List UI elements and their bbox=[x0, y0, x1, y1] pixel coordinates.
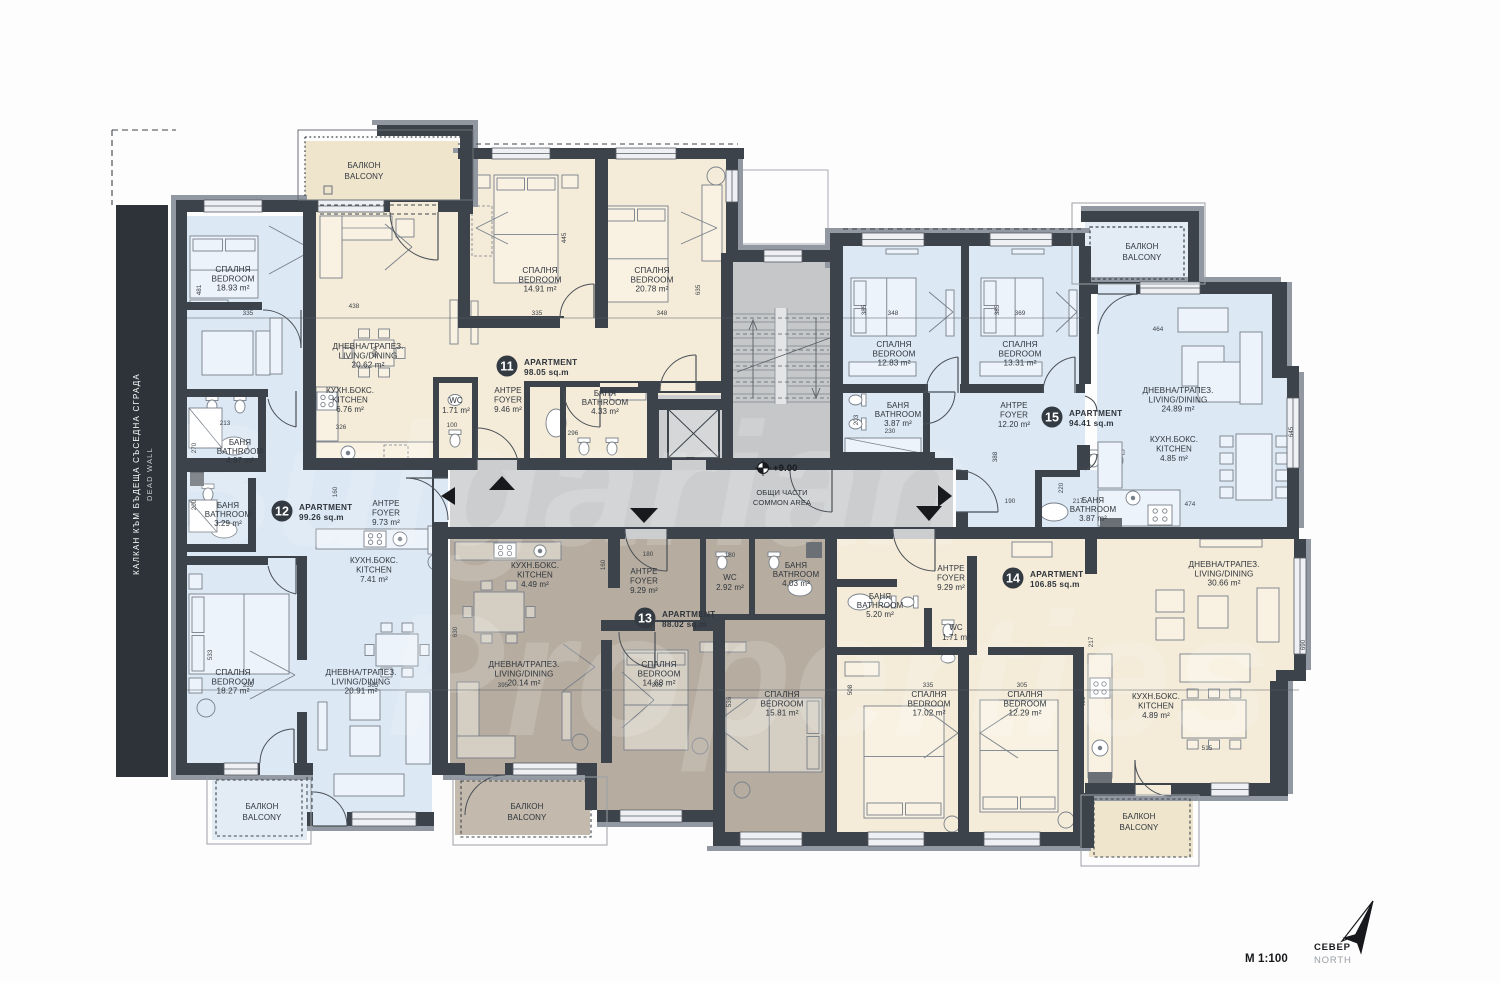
svg-text:BEDROOM: BEDROOM bbox=[907, 699, 950, 708]
svg-text:645: 645 bbox=[1288, 426, 1295, 437]
svg-text:388: 388 bbox=[992, 451, 999, 462]
svg-text:WC: WC bbox=[723, 573, 737, 582]
svg-text:474: 474 bbox=[1185, 501, 1196, 508]
svg-text:BATHROOM: BATHROOM bbox=[582, 398, 629, 407]
svg-text:9.29 m²: 9.29 m² bbox=[937, 583, 965, 592]
svg-text:СПАЛНЯ: СПАЛНЯ bbox=[911, 690, 946, 699]
svg-text:783: 783 bbox=[443, 674, 450, 685]
svg-text:5.20 m²: 5.20 m² bbox=[866, 610, 894, 619]
svg-text:213: 213 bbox=[220, 420, 231, 427]
svg-text:BEDROOM: BEDROOM bbox=[518, 275, 561, 284]
svg-text:98.05 sq.m: 98.05 sq.m bbox=[524, 368, 569, 377]
svg-text:БАНЯ: БАНЯ bbox=[594, 389, 616, 398]
svg-text:3.87 m²: 3.87 m² bbox=[884, 419, 912, 428]
svg-text:20.14 m²: 20.14 m² bbox=[507, 679, 540, 688]
svg-text:13: 13 bbox=[638, 612, 652, 626]
svg-text:СПАЛНЯ: СПАЛНЯ bbox=[764, 690, 799, 699]
svg-text:508: 508 bbox=[847, 684, 854, 695]
svg-text:217: 217 bbox=[1088, 636, 1095, 647]
svg-text:2.92 m²: 2.92 m² bbox=[716, 583, 744, 592]
svg-text:ДНЕВНА/ТРАПЕЗ.: ДНЕВНА/ТРАПЕЗ. bbox=[1142, 386, 1213, 395]
svg-text:АНТРЕ: АНТРЕ bbox=[630, 567, 657, 576]
svg-text:СПАЛНЯ: СПАЛНЯ bbox=[1002, 340, 1037, 349]
svg-text:100: 100 bbox=[447, 422, 458, 429]
svg-text:7.41 m²: 7.41 m² bbox=[360, 575, 388, 584]
svg-text:BALCONY: BALCONY bbox=[1123, 253, 1162, 262]
svg-text:14: 14 bbox=[1006, 572, 1020, 586]
svg-text:3.87 m²: 3.87 m² bbox=[1079, 514, 1107, 523]
svg-text:9.29 m²: 9.29 m² bbox=[630, 586, 658, 595]
svg-text:106.85 sq.m: 106.85 sq.m bbox=[1030, 580, 1080, 589]
svg-text:12.83 m²: 12.83 m² bbox=[877, 359, 910, 368]
svg-text:335: 335 bbox=[532, 310, 543, 317]
svg-text:403: 403 bbox=[1080, 696, 1087, 707]
svg-text:ДНЕВНА/ТРАПЕЗ.: ДНЕВНА/ТРАПЕЗ. bbox=[332, 342, 403, 351]
svg-text:12: 12 bbox=[275, 505, 289, 519]
svg-text:270: 270 bbox=[191, 442, 198, 453]
svg-text:160: 160 bbox=[205, 546, 216, 553]
svg-text:БАНЯ: БАНЯ bbox=[785, 561, 807, 570]
svg-text:3.29 m²: 3.29 m² bbox=[214, 519, 242, 528]
svg-text:BEDROOM: BEDROOM bbox=[760, 699, 803, 708]
svg-text:1.71 m²: 1.71 m² bbox=[442, 406, 470, 415]
svg-text:9.46 m²: 9.46 m² bbox=[494, 405, 522, 414]
svg-text:КУХН.БОКС.: КУХН.БОКС. bbox=[350, 556, 398, 565]
svg-text:4.03 m²: 4.03 m² bbox=[782, 579, 810, 588]
svg-text:13.31 m²: 13.31 m² bbox=[1003, 359, 1036, 368]
svg-text:КУХН.БОКС.: КУХН.БОКС. bbox=[1132, 692, 1180, 701]
svg-text:BATHROOM: BATHROOM bbox=[217, 447, 264, 456]
svg-text:6.76 m²: 6.76 m² bbox=[336, 405, 364, 414]
svg-text:630: 630 bbox=[452, 626, 459, 637]
svg-text:BALCONY: BALCONY bbox=[1120, 823, 1159, 832]
svg-text:20.62 m²: 20.62 m² bbox=[351, 361, 384, 370]
svg-text:690: 690 bbox=[1300, 639, 1307, 650]
svg-text:ОБЩИ ЧАСТИ: ОБЩИ ЧАСТИ bbox=[756, 488, 807, 497]
svg-text:APARTMENT: APARTMENT bbox=[1030, 570, 1084, 579]
svg-text:ДНЕВНА/ТРАПЕЗ.: ДНЕВНА/ТРАПЕЗ. bbox=[488, 660, 559, 669]
svg-text:APARTMENT: APARTMENT bbox=[524, 358, 578, 367]
svg-text:KITCHEN: KITCHEN bbox=[517, 571, 553, 580]
svg-text:NORTH: NORTH bbox=[1314, 955, 1352, 966]
svg-text:FOYER: FOYER bbox=[937, 574, 965, 583]
svg-text:4.97 m²: 4.97 m² bbox=[226, 456, 254, 465]
svg-text:BEDROOM: BEDROOM bbox=[998, 349, 1041, 358]
svg-text:АНТРЕ: АНТРЕ bbox=[1000, 401, 1027, 410]
svg-text:4.85 m²: 4.85 m² bbox=[1160, 454, 1188, 463]
svg-text:СПАЛНЯ: СПАЛНЯ bbox=[215, 265, 250, 274]
svg-text:+9.00: +9.00 bbox=[773, 463, 798, 474]
svg-text:БАЛКОН: БАЛКОН bbox=[245, 802, 278, 811]
svg-text:BALCONY: BALCONY bbox=[345, 172, 384, 181]
svg-text:LIVING/DINING: LIVING/DINING bbox=[331, 677, 390, 686]
svg-text:335: 335 bbox=[923, 682, 934, 689]
svg-text:20.78 m²: 20.78 m² bbox=[635, 285, 668, 294]
svg-text:515: 515 bbox=[1202, 745, 1213, 752]
svg-text:438: 438 bbox=[349, 303, 360, 310]
svg-text:369: 369 bbox=[1015, 310, 1026, 317]
svg-text:445: 445 bbox=[561, 232, 568, 243]
svg-text:635: 635 bbox=[695, 284, 702, 295]
svg-text:БАНЯ: БАНЯ bbox=[229, 438, 251, 447]
svg-text:FOYER: FOYER bbox=[1000, 411, 1028, 420]
svg-text:АНТРЕ: АНТРЕ bbox=[494, 386, 521, 395]
svg-text:DEAD WALL: DEAD WALL bbox=[145, 447, 154, 501]
svg-text:385: 385 bbox=[861, 304, 868, 315]
svg-text:220: 220 bbox=[1058, 482, 1065, 493]
svg-text:88.02 sq.m: 88.02 sq.m bbox=[662, 620, 707, 629]
svg-text:14.91 m²: 14.91 m² bbox=[523, 285, 556, 294]
svg-text:СПАЛНЯ: СПАЛНЯ bbox=[634, 266, 669, 275]
svg-text:ДНЕВНА/ТРАПЕЗ.: ДНЕВНА/ТРАПЕЗ. bbox=[325, 668, 396, 677]
svg-text:305: 305 bbox=[1017, 682, 1028, 689]
svg-text:СПАЛНЯ: СПАЛНЯ bbox=[522, 266, 557, 275]
svg-text:APARTMENT: APARTMENT bbox=[299, 503, 353, 512]
svg-text:15.81 m²: 15.81 m² bbox=[765, 709, 798, 718]
svg-text:335: 335 bbox=[243, 310, 254, 317]
svg-text:BEDROOM: BEDROOM bbox=[211, 677, 254, 686]
svg-text:4.49 m²: 4.49 m² bbox=[521, 580, 549, 589]
svg-text:BEDROOM: BEDROOM bbox=[211, 274, 254, 283]
svg-text:533: 533 bbox=[207, 649, 214, 660]
svg-text:481: 481 bbox=[196, 284, 203, 295]
svg-text:230: 230 bbox=[885, 428, 896, 435]
svg-text:20.91 m²: 20.91 m² bbox=[344, 687, 377, 696]
svg-text:12.29 m²: 12.29 m² bbox=[1008, 709, 1041, 718]
svg-text:BATHROOM: BATHROOM bbox=[857, 601, 904, 610]
svg-text:17.02 m²: 17.02 m² bbox=[912, 709, 945, 718]
svg-text:14.68 m²: 14.68 m² bbox=[642, 679, 675, 688]
svg-text:KITCHEN: KITCHEN bbox=[356, 566, 392, 575]
svg-text:BATHROOM: BATHROOM bbox=[1070, 505, 1117, 514]
svg-text:LIVING/DINING: LIVING/DINING bbox=[494, 669, 553, 678]
svg-text:4.89 m²: 4.89 m² bbox=[1142, 711, 1170, 720]
svg-text:СПАЛНЯ: СПАЛНЯ bbox=[215, 668, 250, 677]
svg-text:БАНЯ: БАНЯ bbox=[869, 592, 891, 601]
svg-text:BEDROOM: BEDROOM bbox=[630, 275, 673, 284]
svg-text:КУХН.БОКС.: КУХН.БОКС. bbox=[511, 561, 559, 570]
svg-text:1.71 m²: 1.71 m² bbox=[942, 633, 970, 642]
svg-text:464: 464 bbox=[1153, 326, 1164, 333]
svg-text:BATHROOM: BATHROOM bbox=[773, 570, 820, 579]
svg-text:180: 180 bbox=[643, 551, 654, 558]
svg-text:ДНЕВНА/ТРАПЕЗ.: ДНЕВНА/ТРАПЕЗ. bbox=[1188, 560, 1259, 569]
svg-text:9.73 m²: 9.73 m² bbox=[372, 518, 400, 527]
svg-text:11: 11 bbox=[500, 360, 513, 374]
svg-text:БАНЯ: БАНЯ bbox=[1082, 496, 1104, 505]
svg-text:COMMON AREA: COMMON AREA bbox=[753, 498, 811, 507]
svg-text:LIVING/DINING: LIVING/DINING bbox=[338, 351, 397, 360]
svg-text:WC: WC bbox=[949, 623, 963, 632]
svg-text:BATHROOM: BATHROOM bbox=[205, 510, 252, 519]
svg-text:385: 385 bbox=[994, 304, 1001, 315]
svg-text:BATHROOM: BATHROOM bbox=[875, 410, 922, 419]
svg-text:WC: WC bbox=[449, 396, 463, 405]
svg-text:160: 160 bbox=[332, 486, 339, 497]
svg-text:203: 203 bbox=[853, 414, 860, 425]
svg-text:160: 160 bbox=[600, 559, 607, 570]
svg-text:15: 15 bbox=[1045, 411, 1059, 425]
svg-text:LIVING/DINING: LIVING/DINING bbox=[1194, 569, 1253, 578]
svg-text:БАЛКОН: БАЛКОН bbox=[1122, 812, 1155, 821]
svg-text:18.27 m²: 18.27 m² bbox=[216, 687, 249, 696]
svg-text:BEDROOM: BEDROOM bbox=[872, 349, 915, 358]
svg-text:М 1:100: М 1:100 bbox=[1245, 953, 1288, 965]
svg-text:200: 200 bbox=[191, 499, 198, 510]
svg-text:12.20 m²: 12.20 m² bbox=[998, 420, 1031, 429]
svg-text:FOYER: FOYER bbox=[372, 509, 400, 518]
svg-text:348: 348 bbox=[657, 310, 668, 317]
svg-text:180: 180 bbox=[725, 552, 736, 559]
svg-text:KITCHEN: KITCHEN bbox=[332, 396, 368, 405]
svg-text:СПАЛНЯ: СПАЛНЯ bbox=[876, 340, 911, 349]
svg-text:FOYER: FOYER bbox=[630, 577, 658, 586]
svg-text:30.66 m²: 30.66 m² bbox=[1207, 579, 1240, 588]
svg-text:348: 348 bbox=[888, 310, 899, 317]
svg-text:415: 415 bbox=[1085, 556, 1092, 567]
svg-text:KITCHEN: KITCHEN bbox=[1138, 702, 1174, 711]
svg-text:24.89 m²: 24.89 m² bbox=[1161, 405, 1194, 414]
svg-text:FOYER: FOYER bbox=[494, 396, 522, 405]
svg-text:18.93 m²: 18.93 m² bbox=[216, 284, 249, 293]
svg-text:СПАЛНЯ: СПАЛНЯ bbox=[1007, 690, 1042, 699]
svg-text:СПАЛНЯ: СПАЛНЯ bbox=[641, 660, 676, 669]
svg-text:БАНЯ: БАНЯ bbox=[887, 401, 909, 410]
svg-text:АНТРЕ: АНТРЕ bbox=[937, 564, 964, 573]
svg-text:BEDROOM: BEDROOM bbox=[1003, 699, 1046, 708]
svg-text:476: 476 bbox=[713, 684, 720, 695]
svg-text:LIVING/DINING: LIVING/DINING bbox=[1148, 395, 1207, 404]
svg-text:СЕВЕР: СЕВЕР bbox=[1314, 942, 1351, 953]
svg-text:190: 190 bbox=[1005, 498, 1016, 505]
svg-text:БАЛКОН: БАЛКОН bbox=[510, 802, 543, 811]
svg-text:КУХН.БОКС.: КУХН.БОКС. bbox=[326, 386, 374, 395]
svg-text:БАЛКОН: БАЛКОН bbox=[1125, 242, 1158, 251]
svg-text:BALCONY: BALCONY bbox=[243, 813, 282, 822]
svg-text:4.33 m²: 4.33 m² bbox=[591, 407, 619, 416]
svg-text:BEDROOM: BEDROOM bbox=[637, 669, 680, 678]
svg-text:94.41 sq.m: 94.41 sq.m bbox=[1069, 419, 1114, 428]
svg-text:БАНЯ: БАНЯ bbox=[217, 501, 239, 510]
svg-text:APARTMENT: APARTMENT bbox=[662, 610, 716, 619]
svg-text:АНТРЕ: АНТРЕ bbox=[372, 499, 399, 508]
svg-text:КАЛКАН КЪМ БЪДЕЩА СЪСЕДНА СГРА: КАЛКАН КЪМ БЪДЕЩА СЪСЕДНА СГРАДА bbox=[132, 373, 141, 575]
svg-text:326: 326 bbox=[336, 424, 347, 431]
svg-text:БАЛКОН: БАЛКОН bbox=[347, 161, 380, 170]
svg-text:APARTMENT: APARTMENT bbox=[1069, 409, 1123, 418]
svg-text:536: 536 bbox=[726, 696, 733, 707]
svg-text:BALCONY: BALCONY bbox=[508, 813, 547, 822]
svg-text:99.26 sq.m: 99.26 sq.m bbox=[299, 513, 344, 522]
svg-text:КУХН.БОКС.: КУХН.БОКС. bbox=[1150, 435, 1198, 444]
svg-text:296: 296 bbox=[568, 430, 579, 437]
svg-text:KITCHEN: KITCHEN bbox=[1156, 445, 1192, 454]
